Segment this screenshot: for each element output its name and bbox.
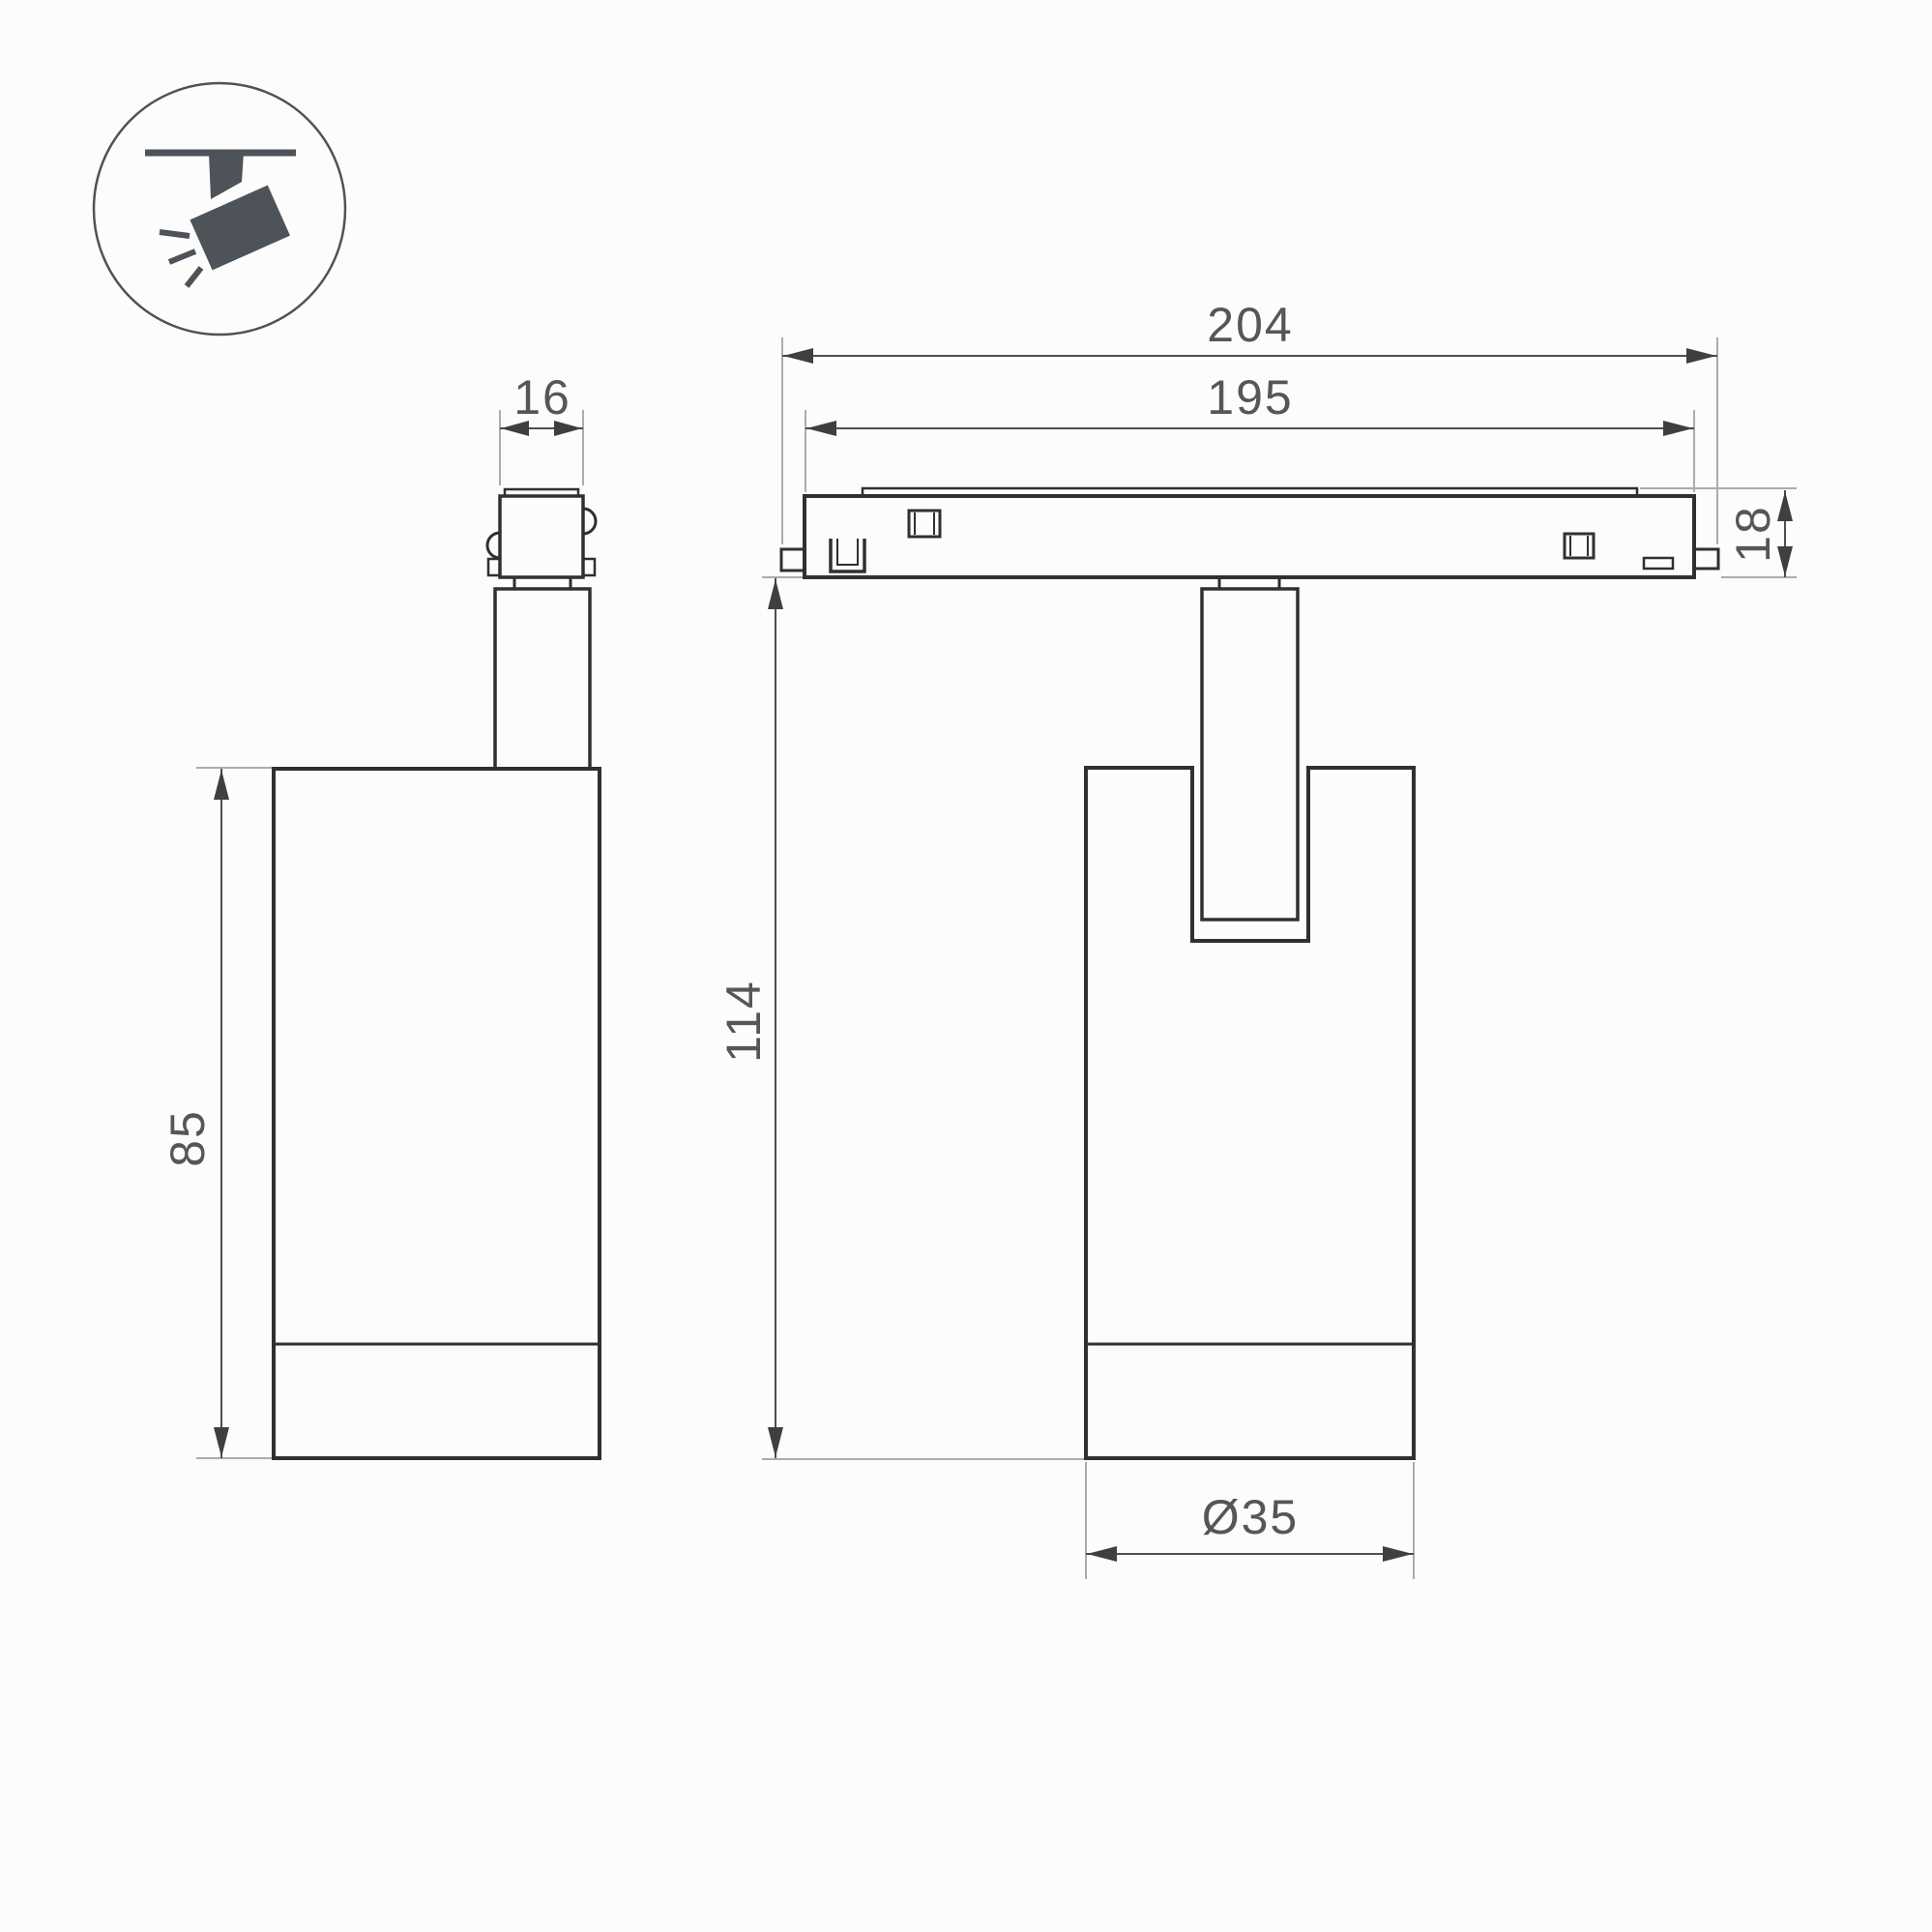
arrowhead-right bbox=[1663, 421, 1693, 436]
arrowhead-down bbox=[768, 1427, 783, 1457]
side-adapter-ear-left bbox=[487, 533, 500, 558]
front-lamp-body bbox=[1086, 768, 1414, 1458]
front-track-slot-right bbox=[1565, 534, 1594, 558]
dimension-label-16: 16 bbox=[513, 370, 571, 424]
dim-body-height: 85 bbox=[161, 768, 272, 1458]
dimension-label-204: 204 bbox=[1207, 298, 1293, 352]
side-view bbox=[274, 489, 600, 1458]
front-track-clip-outer bbox=[831, 539, 864, 571]
side-track-adapter bbox=[500, 496, 583, 577]
dim-track-inner-length: 195 bbox=[805, 370, 1694, 492]
spotlight-track-icon bbox=[94, 83, 345, 335]
front-track-slot-right-walls bbox=[1570, 536, 1588, 556]
icon-lamp-body bbox=[190, 186, 290, 271]
side-adapter-tab-left bbox=[488, 559, 500, 575]
arrowhead-left bbox=[1087, 1546, 1117, 1562]
arrowhead-up bbox=[214, 770, 229, 800]
dimension-label-18: 18 bbox=[1726, 505, 1780, 563]
dim-body-diameter: Ø35 bbox=[1086, 1462, 1414, 1579]
front-track-tab-left bbox=[781, 549, 805, 571]
front-track-vent bbox=[1644, 558, 1673, 569]
icon-light-ray bbox=[160, 232, 190, 236]
technical-drawing: 16 204 195 18 85 bbox=[0, 0, 1932, 1932]
dim-stem-width: 16 bbox=[500, 370, 583, 485]
side-stem bbox=[495, 589, 590, 769]
front-track-slot-left bbox=[909, 511, 940, 537]
side-adapter-tab-right bbox=[583, 559, 595, 575]
front-track-clip-inner bbox=[837, 539, 858, 565]
side-swivel-neck bbox=[514, 577, 571, 589]
arrowhead-left bbox=[806, 421, 836, 436]
front-view bbox=[781, 488, 1718, 1458]
icon-light-ray bbox=[169, 251, 195, 262]
dimension-label-195: 195 bbox=[1207, 370, 1293, 424]
technical-drawing-page: 16 204 195 18 85 bbox=[0, 0, 1932, 1932]
dimension-label-diameter-35: Ø35 bbox=[1202, 1490, 1300, 1544]
dimension-label-85: 85 bbox=[161, 1109, 215, 1167]
side-lamp-body bbox=[274, 769, 600, 1458]
front-stem bbox=[1202, 589, 1298, 920]
icon-track-stem bbox=[209, 153, 244, 199]
dim-total-height: 114 bbox=[717, 577, 1084, 1459]
front-track-slot-left-walls bbox=[915, 512, 934, 535]
dimension-label-114: 114 bbox=[717, 980, 771, 1063]
arrowhead-right bbox=[1686, 348, 1716, 364]
arrowhead-left bbox=[783, 348, 813, 364]
side-adapter-ear-right bbox=[583, 509, 596, 534]
arrowhead-right bbox=[1383, 1546, 1413, 1562]
icon-light-ray bbox=[187, 268, 201, 286]
arrowhead-up bbox=[768, 579, 783, 609]
arrowhead-down bbox=[214, 1427, 229, 1457]
front-track-tab-right bbox=[1694, 549, 1718, 569]
